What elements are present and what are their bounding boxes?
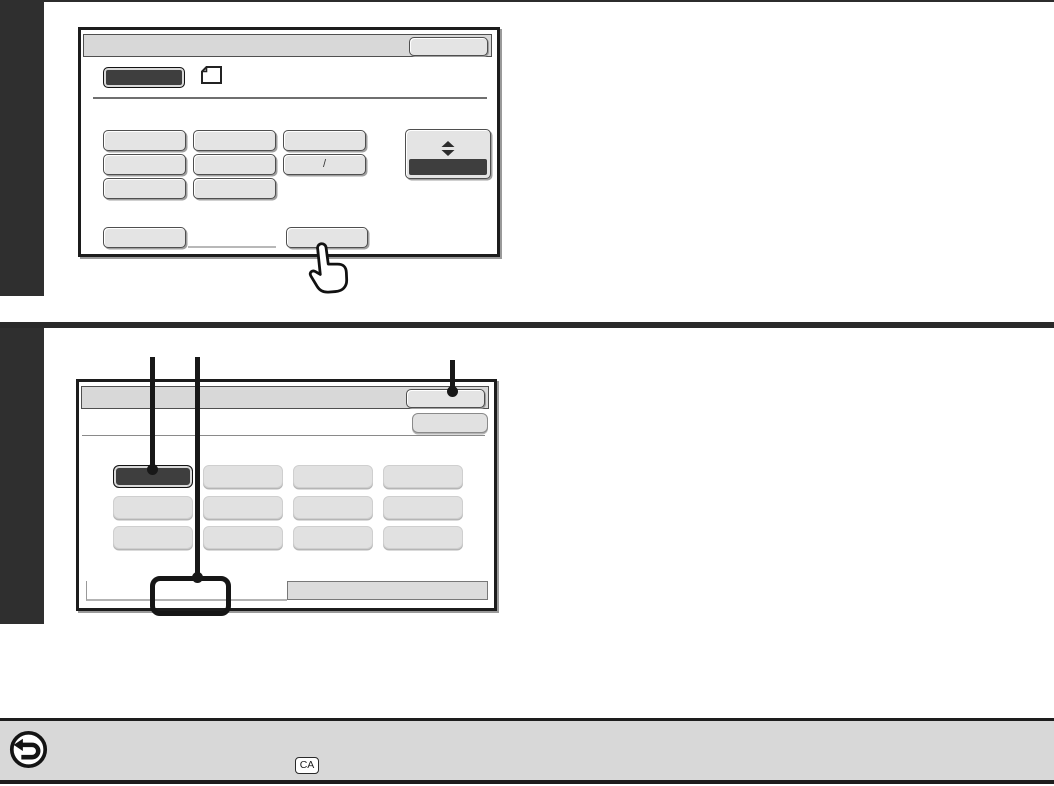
pointing-hand-cursor-icon (301, 241, 349, 295)
screen2-grid-button[interactable] (113, 496, 193, 519)
screen1-separator (93, 97, 487, 99)
footer-bar: CA (0, 718, 1054, 784)
screen1-grid-button[interactable] (103, 130, 186, 151)
screen2-tab-inactive[interactable] (287, 581, 488, 600)
screen2-grid-button[interactable] (203, 465, 283, 488)
screen1-slash-button[interactable]: / (283, 154, 366, 175)
up-down-arrows-icon (442, 141, 455, 156)
screen2-grid-button[interactable] (383, 526, 463, 549)
screen1-grid-button[interactable] (193, 154, 276, 175)
section-divider-bar (0, 322, 1054, 328)
back-arrow-icon (12, 733, 45, 766)
callout-dot (147, 464, 158, 475)
screen2-grid-button[interactable] (203, 526, 283, 549)
screen2-titlebar (81, 386, 489, 409)
screen1-titlebar (83, 34, 492, 57)
page-indicator-bar (409, 159, 487, 175)
touch-screen-1: / (78, 27, 500, 257)
callout-line-selected-button (150, 357, 155, 470)
screen1-scroll-button[interactable] (405, 129, 491, 179)
screen1-grid-button[interactable] (103, 178, 186, 199)
screen1-bottom-underline (188, 246, 276, 248)
sidebar-block-top (0, 0, 44, 296)
screen1-titlebar-button[interactable] (409, 37, 488, 56)
screen2-grid-button[interactable] (203, 496, 283, 519)
screen2-grid-button[interactable] (293, 465, 373, 488)
page-top-border (0, 0, 1054, 2)
callout-dot (192, 572, 203, 583)
screen1-grid-button[interactable] (193, 178, 276, 199)
screen2-titlebar-button[interactable] (406, 389, 485, 408)
screen2-grid-button[interactable] (293, 526, 373, 549)
screen2-header-button[interactable] (412, 413, 488, 433)
screen2-grid-button[interactable] (383, 465, 463, 488)
callout-line-tab (195, 357, 200, 578)
manual-page: / (0, 0, 1054, 786)
ca-key-icon: CA (295, 757, 319, 774)
touch-screen-2 (76, 379, 497, 611)
screen2-separator (82, 435, 485, 436)
sidebar-block-bottom (0, 328, 44, 624)
screen1-bottom-left-button[interactable] (103, 227, 186, 248)
callout-highlight-box (150, 576, 231, 616)
screen1-grid-button[interactable] (193, 130, 276, 151)
screen1-mode-button[interactable] (103, 67, 185, 88)
back-button[interactable] (8, 729, 49, 770)
screen1-grid-button[interactable] (103, 154, 186, 175)
original-document-icon (200, 65, 223, 85)
callout-dot (447, 386, 458, 397)
screen2-grid-button[interactable] (383, 496, 463, 519)
screen1-grid-button[interactable] (283, 130, 366, 151)
screen2-grid-button[interactable] (113, 526, 193, 549)
screen2-grid-button[interactable] (293, 496, 373, 519)
